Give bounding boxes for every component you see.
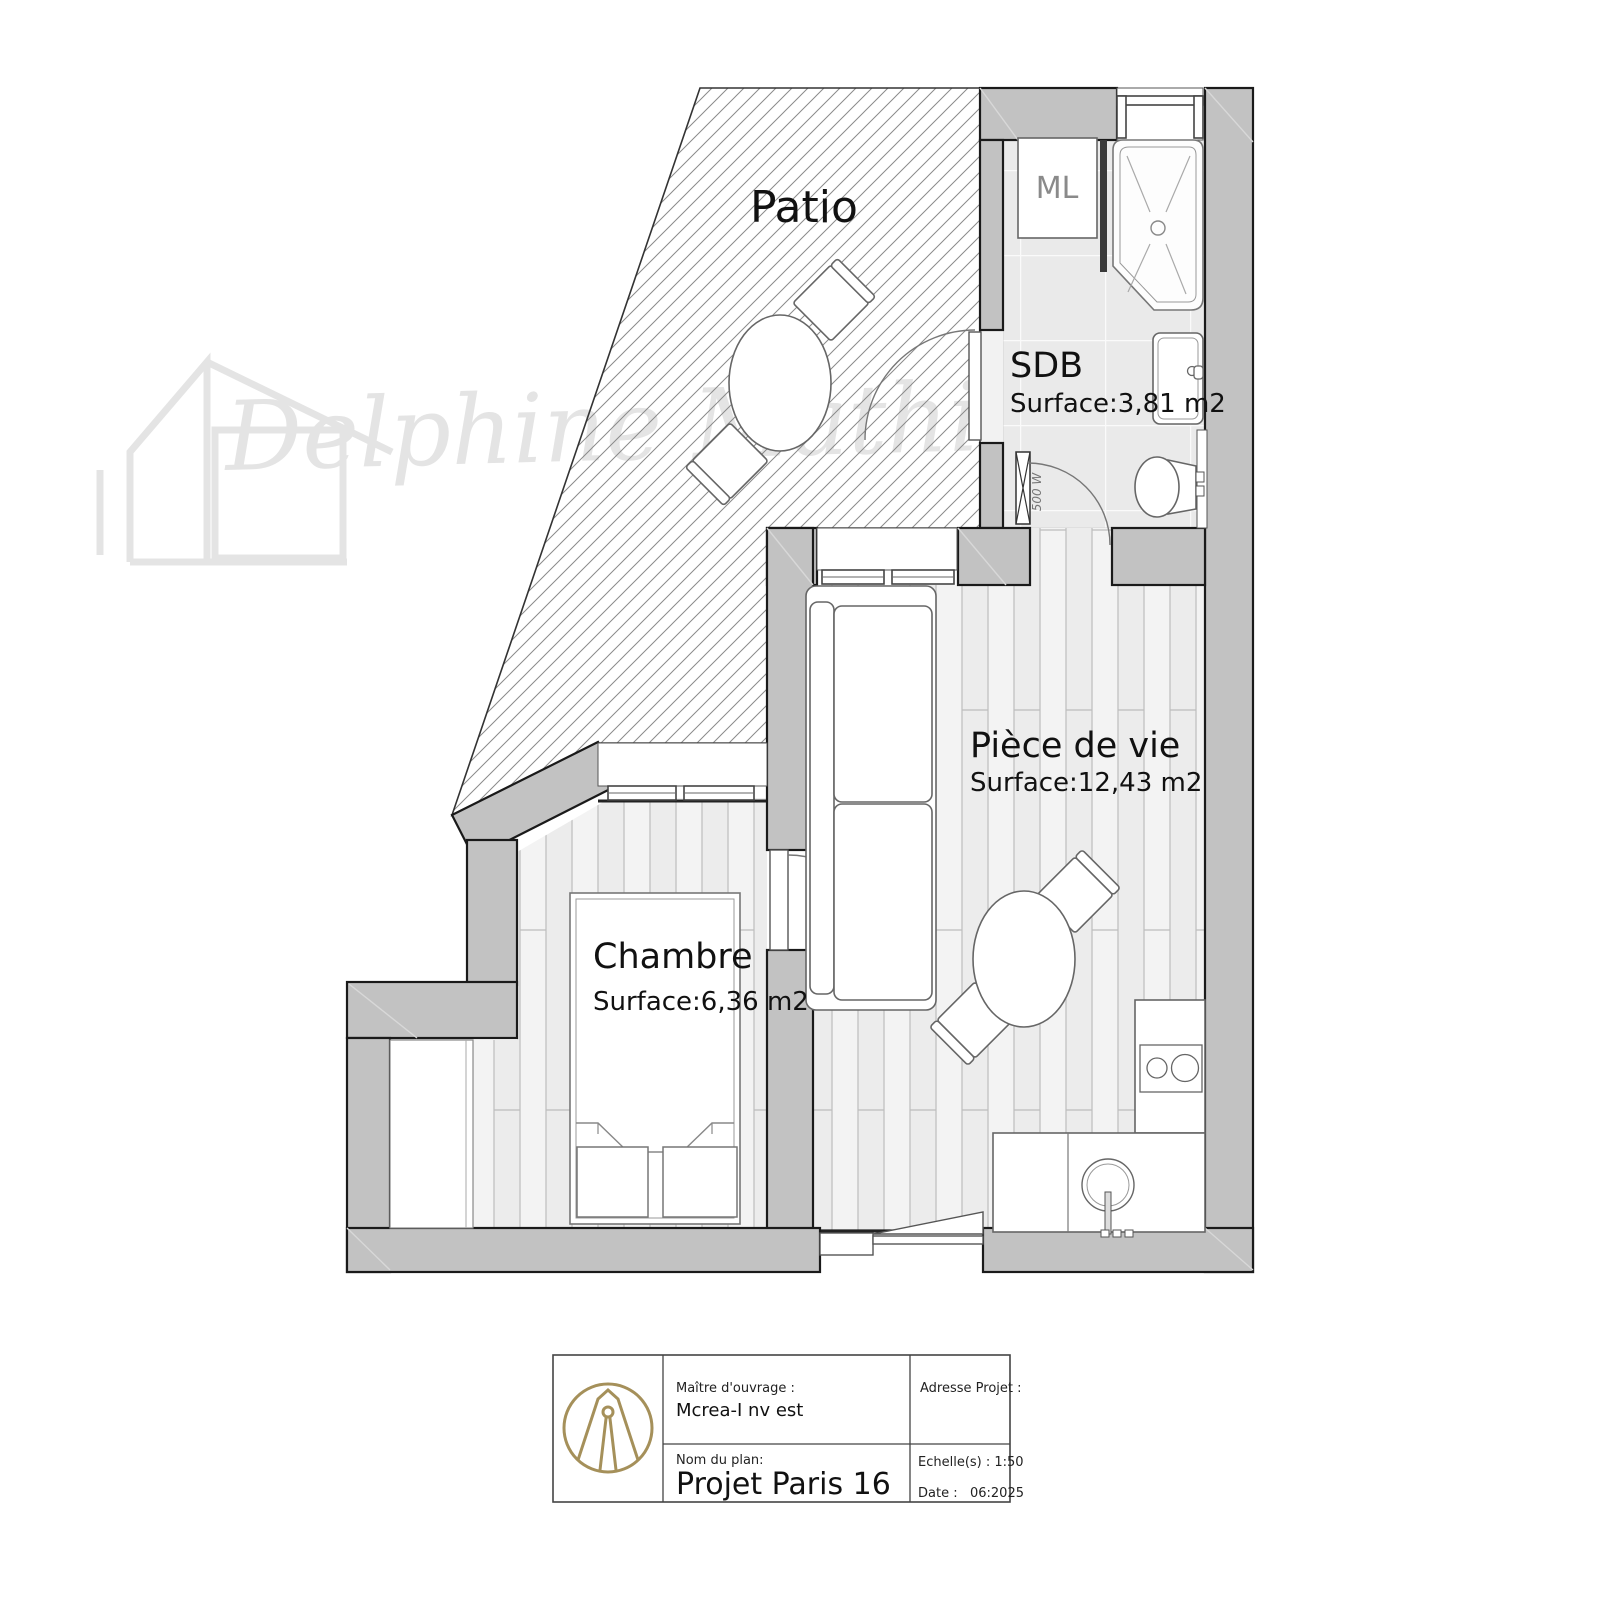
living-room-surface-label: Surface:12,43 m2 — [970, 768, 1202, 798]
bathroom-window — [1117, 88, 1203, 140]
patio-round-table — [729, 315, 831, 451]
hallway-floor — [1030, 528, 1112, 585]
wall-sdb-bottom-left — [958, 528, 1030, 585]
wall-bedroom-left-upper — [467, 840, 517, 985]
wall-bath-left-lower — [980, 443, 1003, 528]
date-label: Date : 06:2025 — [918, 1486, 1024, 1501]
radiator-power-label: 500 W — [1030, 472, 1044, 512]
shower-glass-partition — [1100, 140, 1107, 272]
wall-bath-left-upper — [980, 140, 1003, 330]
dining-table — [973, 891, 1075, 1027]
sdb-surface-label: Surface:3,81 m2 — [1010, 389, 1226, 419]
sdb-door-threshold-floor — [980, 330, 1003, 443]
wall-bath-top — [980, 88, 1117, 140]
bed-cushion-left — [577, 1147, 648, 1217]
title-block: Maître d'ouvrage : Mcrea-I nv est Nom du… — [553, 1355, 1024, 1502]
client-value: Mcrea-I nv est — [676, 1400, 803, 1421]
bed-cushion-right — [663, 1147, 737, 1217]
bedroom-surface-label: Surface:6,36 m2 — [593, 987, 809, 1017]
plan-name-label: Nom du plan: — [676, 1453, 764, 1468]
wall-bedroom-step — [347, 982, 517, 1038]
washing-machine-label: ML — [1036, 171, 1079, 206]
wall-right — [1205, 88, 1253, 1272]
bedroom-closet — [390, 1040, 473, 1228]
wall-bottom-left — [347, 1228, 820, 1272]
address-label: Adresse Projet : — [920, 1381, 1022, 1396]
floor-plan-canvas: Delphine Mathieu — [0, 0, 1600, 1600]
sofa — [806, 586, 936, 1010]
plan-name-value: Projet Paris 16 — [676, 1467, 891, 1502]
wall-sdb-bottom-right — [1112, 528, 1205, 585]
sdb-label: SDB — [1010, 346, 1083, 386]
patio-label: Patio — [750, 182, 858, 233]
bedroom-label: Chambre — [593, 937, 753, 977]
scale-label: Echelle(s) : 1:50 — [918, 1455, 1024, 1470]
shower-drain — [1151, 221, 1165, 235]
living-room-label: Pièce de vie — [970, 726, 1180, 766]
client-label: Maître d'ouvrage : — [676, 1381, 795, 1396]
kitchen-faucet — [1105, 1192, 1111, 1234]
